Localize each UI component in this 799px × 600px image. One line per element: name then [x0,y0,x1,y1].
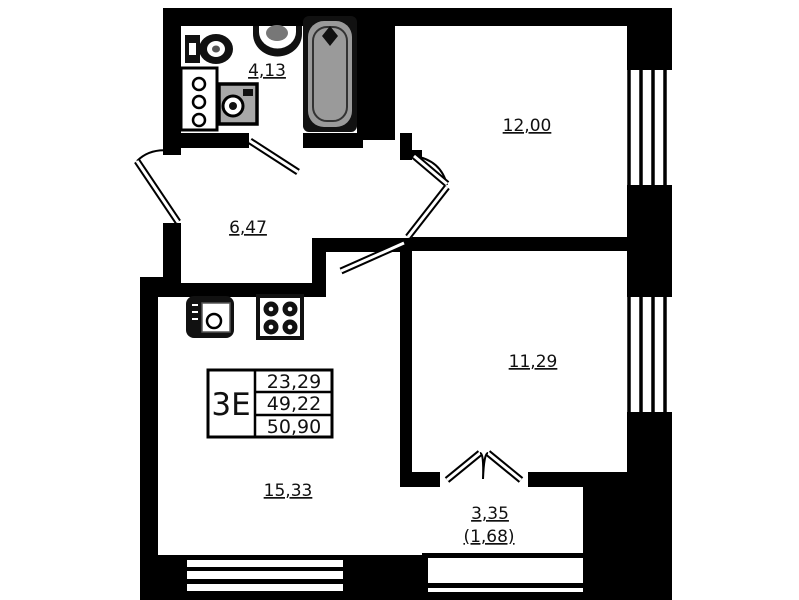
room-label-hall: 6,47 [229,218,267,238]
room-label-balcony-reduced: (1,68) [463,527,514,547]
wall-left-upper [163,8,181,155]
wall-top [163,8,672,26]
wall-bottom-strip [140,592,672,600]
balcony-parapet [422,583,583,588]
door-center-detail [480,453,488,479]
entrance-door [137,150,178,222]
room-label-balcony: 3,35 [471,504,509,524]
window-glazing-slit [187,584,343,591]
wall-bedroom-room2 [412,237,627,251]
bathroom-door [250,141,298,172]
bathtub-icon [303,16,357,132]
floor-plan: 4,13 12,00 6,47 11,29 15,33 3,35 (1,68) … [0,0,799,600]
room2-door [408,187,447,237]
wall-right-mid [627,185,672,297]
room-label-bedroom: 12,00 [503,116,552,136]
toilet-icon [185,34,233,64]
balcony-french-door [447,453,521,480]
wall-bath-right [357,8,395,140]
wall-kitchen-room2 [400,238,412,487]
washing-machine-icon [219,84,257,124]
window-room2 [627,297,672,412]
floor-plan-svg: 4,13 12,00 6,47 11,29 15,33 3,35 (1,68) … [0,0,799,600]
room-label-room2: 11,29 [509,352,558,372]
area-value-living: 23,29 [267,371,321,393]
unit-type-code: 3Е [211,387,250,423]
kitchen-sink-icon [186,296,234,338]
wall-balcony-top-right [528,472,627,487]
bathroom-cabinet-icon [181,68,217,130]
wall-hall-connector [312,252,326,297]
bathroom-sink-icon [253,25,302,56]
window-glazing-slit [187,571,343,579]
wall-left-lower [140,297,158,595]
room-label-bathroom: 4,13 [248,61,286,81]
stove-icon [258,296,302,338]
wall-bath-bottom-left [163,133,249,148]
area-value-apartment: 49,22 [267,393,321,415]
area-value-total: 50,90 [267,416,321,438]
balcony-slab-edge [422,553,583,558]
bedroom-door [414,156,447,185]
window-bedroom [627,70,672,185]
window-glazing-slit [187,560,343,567]
wall-right-upper [627,8,672,70]
room-label-kitchen-living: 15,33 [264,481,313,501]
wall-left-mid [163,223,181,283]
window-kitchen [187,560,343,591]
wall-bottom-right-block [583,487,672,600]
unit-info-table: 3Е 23,29 49,22 50,90 [208,370,332,438]
wall-bath-bottom-right [303,133,363,148]
wall-balcony-top-left [400,472,440,487]
